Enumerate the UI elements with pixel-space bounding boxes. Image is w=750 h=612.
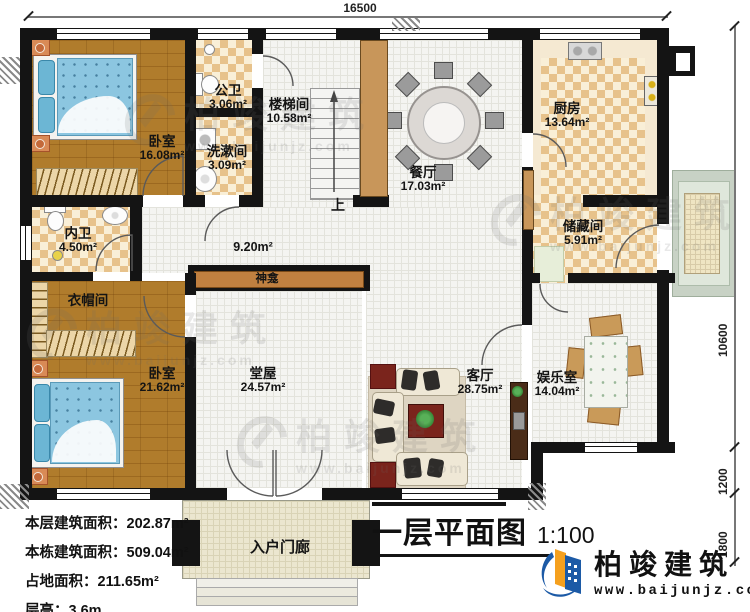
brand-name: 柏竣建筑 xyxy=(594,543,750,583)
room-label-cloakroom: 衣帽间 xyxy=(52,293,124,308)
room-label-stairhall: 楼梯间 10.58m² xyxy=(254,97,324,126)
stats-block: 本层建筑面积：202.87m² 本栋建筑面积：509.04m² 占地面积：211… xyxy=(25,512,189,612)
room-name: 公卫 xyxy=(200,83,256,98)
brand-logo-icon xyxy=(536,542,588,600)
dim-right-main: 10600 xyxy=(716,277,730,357)
title-rule-top xyxy=(372,502,506,506)
room-area: 10.58m² xyxy=(254,112,324,125)
room-area: 3.09m² xyxy=(194,159,260,172)
room-name: 堂屋 xyxy=(226,366,300,381)
room-label-public-bath: 公卫 3.06m² xyxy=(200,83,256,112)
stairs-up-label: 上 xyxy=(326,198,350,214)
room-area: 13.64m² xyxy=(530,116,604,129)
brand-logo: 柏竣建筑 www.baijunjz.com xyxy=(536,542,750,600)
room-area: 24.57m² xyxy=(226,381,300,394)
room-name: 厨房 xyxy=(530,101,604,116)
room-name: 楼梯间 xyxy=(254,97,324,112)
room-label-main-hall: 堂屋 24.57m² xyxy=(226,366,300,395)
room-name: 入户门廊 xyxy=(230,540,330,557)
room-label-living: 客厅 28.75m² xyxy=(444,368,516,397)
shrine-text: 神龛 xyxy=(244,273,290,286)
corridor-area-label: 9.20m² xyxy=(220,240,286,254)
room-area: 5.91m² xyxy=(546,234,620,247)
brand-url: www.baijunjz.com xyxy=(594,583,750,599)
room-label-kitchen: 厨房 13.64m² xyxy=(530,101,604,130)
room-area: 3.06m² xyxy=(200,98,256,111)
room-name: 娱乐室 xyxy=(518,370,596,385)
room-name: 洗漱间 xyxy=(194,144,260,159)
room-label-bedroom1: 卧室 16.08m² xyxy=(120,134,204,163)
room-area: 28.75m² xyxy=(444,383,516,396)
room-area: 21.62m² xyxy=(120,381,204,394)
room-area: 17.03m² xyxy=(388,180,458,193)
up-text: 上 xyxy=(326,198,350,214)
room-name: 客厅 xyxy=(444,368,516,383)
room-label-washroom: 洗漱间 3.09m² xyxy=(194,144,260,173)
stat-line: 本层建筑面积：202.87m² xyxy=(25,512,189,533)
shrine-label: 神龛 xyxy=(244,273,290,286)
stat-line: 本栋建筑面积：509.04m² xyxy=(25,541,189,562)
area-value: 9.20m² xyxy=(220,240,286,254)
title-rule-bottom xyxy=(372,554,552,558)
room-label-entertainment: 娱乐室 14.04m² xyxy=(518,370,596,399)
room-area: 14.04m² xyxy=(518,385,596,398)
room-area: 16.08m² xyxy=(120,149,204,162)
room-name: 衣帽间 xyxy=(52,293,124,308)
dim-top-label: 16500 xyxy=(325,1,395,15)
room-label-storage: 储藏间 5.91m² xyxy=(546,219,620,248)
room-label-dining: 餐厅 17.03m² xyxy=(388,165,458,194)
room-label-porch: 入户门廊 xyxy=(230,540,330,557)
room-name: 卧室 xyxy=(120,134,204,149)
stat-line: 层高：3.6m xyxy=(25,599,189,612)
floor-plan: 16500 10600 1200 1800 柏竣建筑 www.baijunjz.… xyxy=(0,0,750,612)
room-name: 储藏间 xyxy=(546,219,620,234)
room-area: 4.50m² xyxy=(47,241,109,254)
room-label-bedroom2: 卧室 21.62m² xyxy=(120,366,204,395)
room-name: 卧室 xyxy=(120,366,204,381)
room-name: 餐厅 xyxy=(388,165,458,180)
dim-right-porch: 1200 xyxy=(716,447,730,495)
stat-line: 占地面积：211.65m² xyxy=(25,570,189,591)
room-name: 内卫 xyxy=(47,226,109,241)
room-label-inner-bath: 内卫 4.50m² xyxy=(47,226,109,255)
plan-title: 一层平面图 xyxy=(372,508,527,552)
